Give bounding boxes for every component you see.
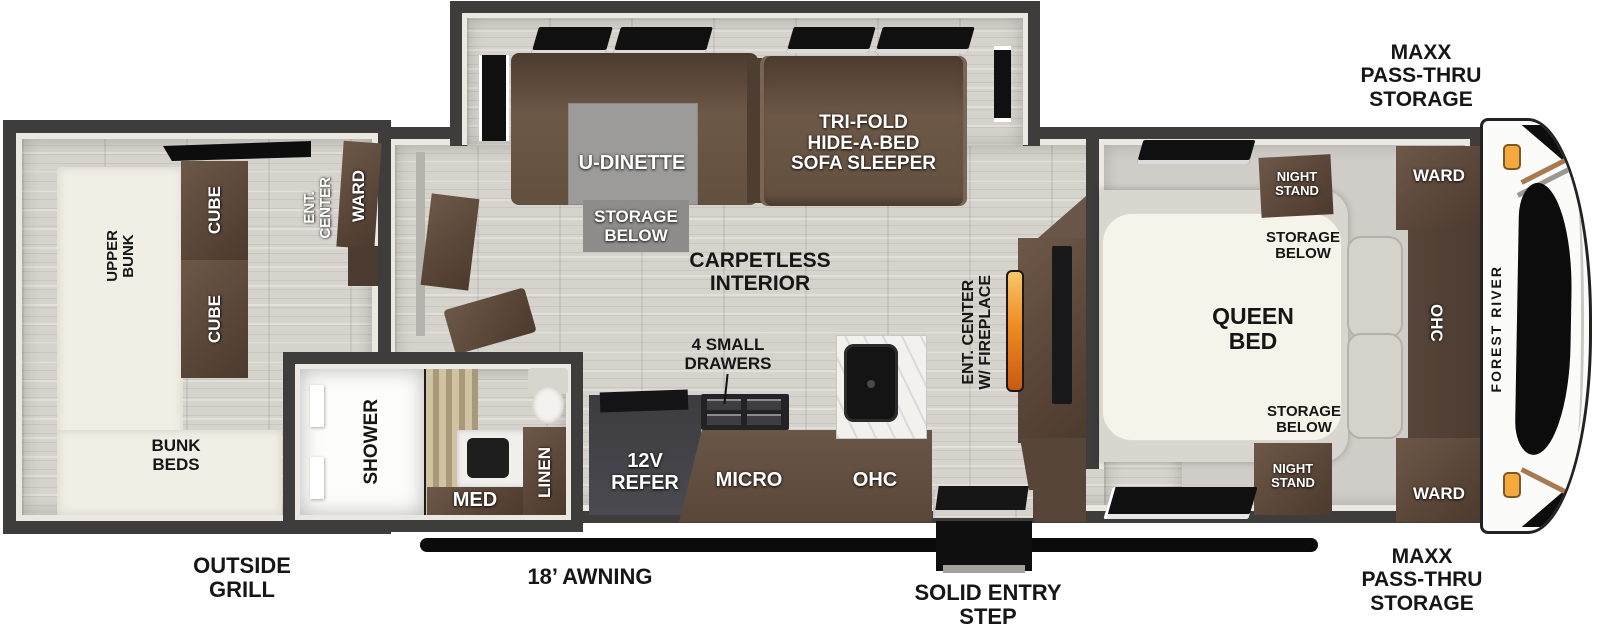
flooring-label: CARPETLESS INTERIOR: [660, 248, 860, 296]
night-stand-top-label: NIGHT STAND: [1258, 162, 1336, 206]
slideout-window-4: [875, 27, 974, 53]
bunk-ent-center-label: ENT. CENTER: [294, 158, 342, 258]
cap-windshield: [1515, 183, 1574, 456]
fireplace-flame: [1006, 270, 1024, 392]
outside-grill-label: OUTSIDE GRILL: [162, 552, 322, 604]
entry-step-label: SOLID ENTRY STEP: [900, 580, 1076, 628]
kitchen-sink: [844, 344, 898, 422]
linen-label: LINEN: [523, 430, 566, 514]
entry-step: [936, 521, 1032, 571]
storage-below-bottom-label: STORAGE BELOW: [1241, 400, 1367, 440]
rv-floorplan: 12V REFER MICRO OHC CARPETLESS INTERIOR …: [0, 0, 1600, 628]
cap-marker-light-bottom: [1503, 472, 1521, 498]
entry-step-lip: [943, 565, 1025, 573]
sofa-label: TRI-FOLD HIDE-A-BED SOFA SLEEPER: [760, 102, 967, 186]
bunk-beds-label: BUNK BEDS: [116, 434, 236, 478]
slideout-window-3: [786, 27, 875, 53]
slideout-side-window-left: [479, 55, 509, 141]
wardrobe-bottom-label: WARD: [1396, 480, 1482, 508]
cap-contour-line: [1571, 203, 1584, 433]
toilet-bowl: [532, 386, 564, 424]
refrigerator-label: 12V REFER: [589, 446, 701, 498]
u-dinette-label: U-DINETTE: [568, 148, 696, 178]
cap-marker-light-top: [1503, 144, 1521, 170]
dinette-storage-label: STORAGE BELOW: [583, 203, 689, 251]
sliding-door-track: [416, 152, 425, 336]
queen-bed-label: QUEEN BED: [1173, 302, 1333, 356]
tv-screen: [1052, 246, 1072, 404]
bedroom-divider-wall: [1086, 139, 1099, 469]
slideout-window-2: [613, 27, 713, 54]
microwave-label: MICRO: [706, 466, 792, 494]
shower-label: SHOWER: [352, 374, 392, 510]
cube-front-label: CUBE: [181, 260, 248, 378]
wardrobe-top-label: WARD: [1396, 162, 1482, 190]
entry-mat: [935, 486, 1028, 510]
bedroom-ohc-label: OHC: [1420, 292, 1452, 354]
bunk-wardrobe-lower: [348, 246, 378, 286]
front-cap-logo: FOREST RIVER: [1485, 191, 1507, 467]
drawers-callout: 4 SMALL DRAWERS: [650, 334, 806, 376]
slideout-window-1: [531, 27, 613, 54]
storage-label-bottom: MAXX PASS-THRU STORAGE: [1342, 540, 1502, 620]
night-stand-bottom-label: NIGHT STAND: [1254, 454, 1332, 498]
slideout-side-window-right: [994, 46, 1011, 122]
awning-label: 18’ AWNING: [500, 562, 680, 592]
entertainment-label: ENT. CENTER W/ FIREPLACE: [950, 250, 1006, 414]
refrigerator-top: [600, 389, 689, 412]
bedroom-window-bottom: [1103, 487, 1257, 519]
front-cap: FOREST RIVER: [1480, 118, 1592, 534]
bath-vanity: [457, 430, 531, 488]
storage-below-top-label: STORAGE BELOW: [1240, 226, 1366, 266]
kitchen-ohc-label: OHC: [832, 466, 918, 494]
upper-bunk-label: UPPER BUNK: [96, 220, 146, 292]
storage-label-top: MAXX PASS-THRU STORAGE: [1341, 36, 1501, 116]
bunk-ward-label: WARD: [340, 150, 378, 242]
cube-rear-label: CUBE: [181, 161, 248, 260]
awning-bar: [420, 538, 1318, 552]
med-label: MED: [427, 486, 523, 514]
stove-drawers: [701, 394, 789, 430]
bedroom-window-top: [1137, 140, 1256, 164]
